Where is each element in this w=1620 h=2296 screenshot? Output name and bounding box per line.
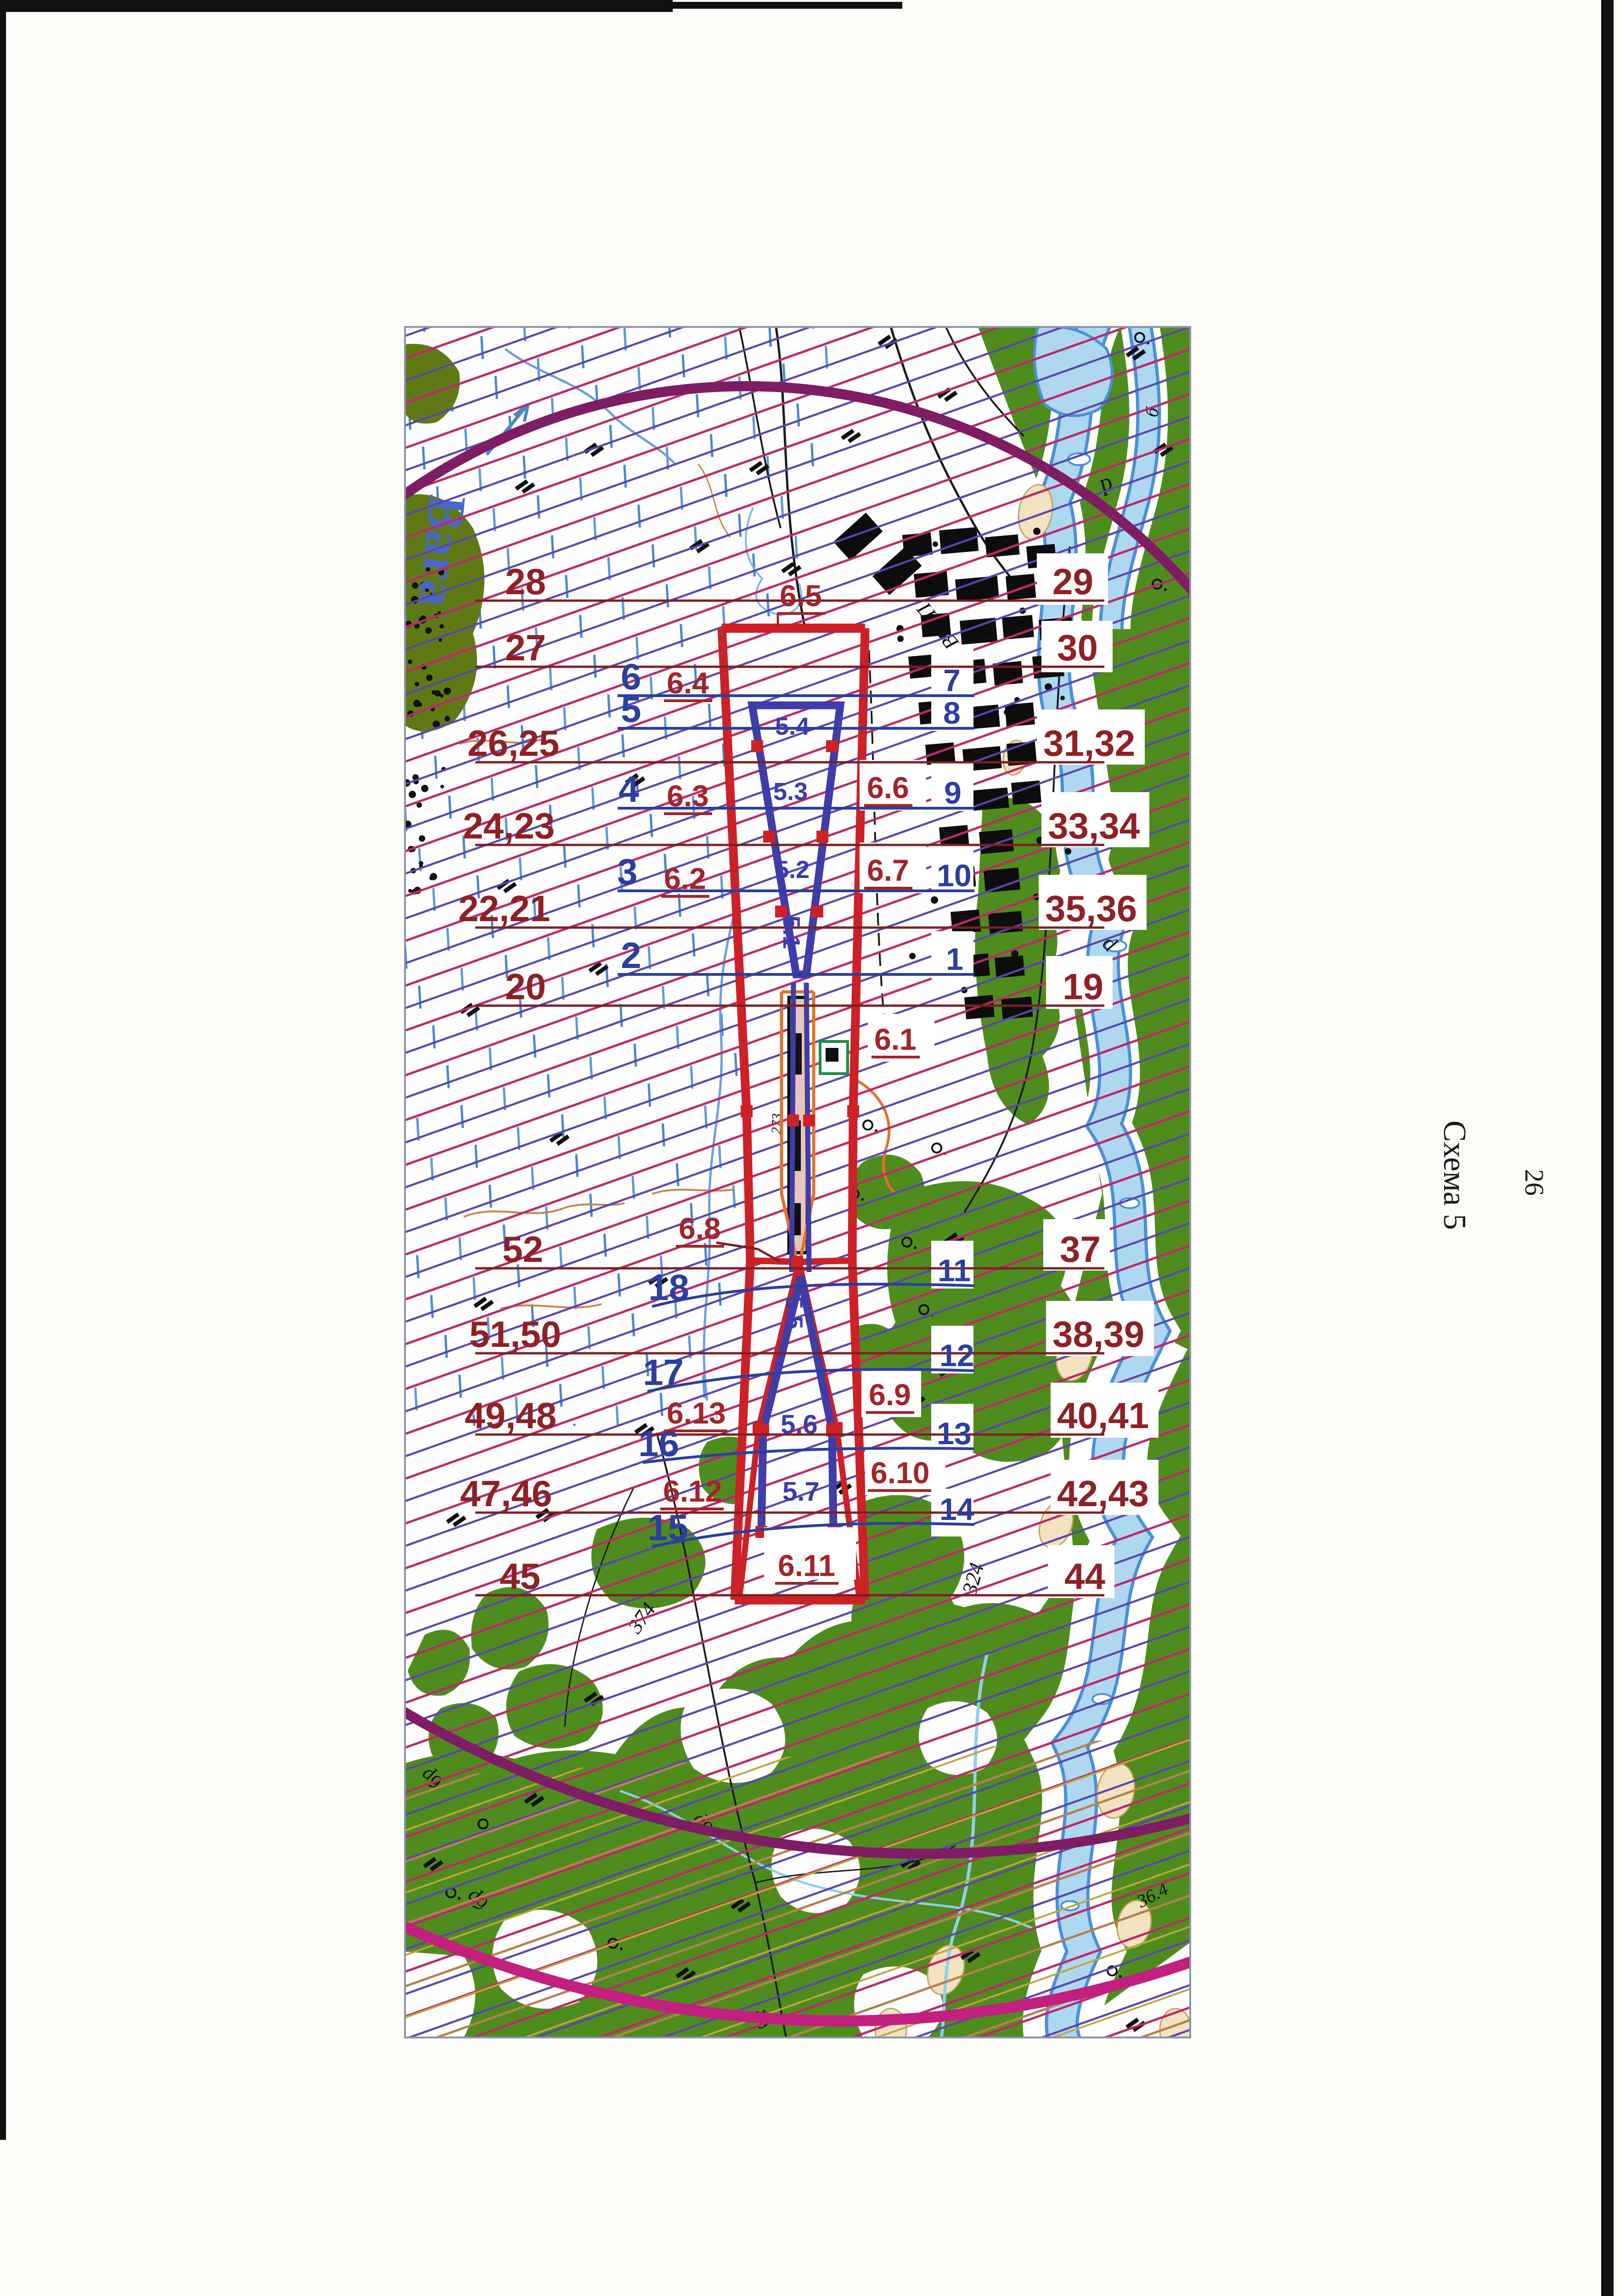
svg-text:37: 37: [1060, 1229, 1101, 1270]
svg-text:33,34: 33,34: [1048, 805, 1140, 846]
svg-text:5.1: 5.1: [778, 916, 804, 949]
svg-text:14: 14: [939, 1492, 974, 1527]
svg-text:47,46: 47,46: [460, 1473, 552, 1514]
svg-text:5.6: 5.6: [781, 1410, 818, 1440]
svg-text:6.13: 6.13: [667, 1396, 726, 1430]
svg-text:7: 7: [943, 663, 961, 698]
svg-text:5.3: 5.3: [773, 778, 808, 805]
svg-text:5: 5: [621, 689, 641, 730]
svg-text:5.5: 5.5: [781, 1296, 807, 1329]
svg-text:12: 12: [939, 1338, 974, 1373]
svg-text:38,39: 38,39: [1052, 1314, 1144, 1355]
svg-text:29: 29: [1052, 561, 1093, 602]
svg-text:31,32: 31,32: [1043, 723, 1135, 764]
svg-text:5.2: 5.2: [775, 856, 810, 884]
svg-text:49,48: 49,48: [465, 1395, 557, 1436]
svg-text:11: 11: [938, 1253, 971, 1288]
svg-text:2: 2: [621, 935, 641, 976]
svg-text:6.1: 6.1: [874, 1022, 917, 1056]
svg-text:3: 3: [617, 851, 638, 892]
svg-text:22,21: 22,21: [458, 888, 550, 929]
svg-text:6.4: 6.4: [667, 666, 709, 700]
svg-text:44: 44: [1064, 1556, 1105, 1597]
svg-text:42,43: 42,43: [1057, 1473, 1149, 1514]
svg-text:1: 1: [946, 942, 963, 977]
svg-text:9: 9: [944, 776, 962, 810]
svg-text:5.7: 5.7: [782, 1477, 820, 1507]
svg-text:6.9: 6.9: [869, 1378, 911, 1412]
svg-text:28: 28: [505, 561, 546, 602]
svg-text:35,36: 35,36: [1045, 888, 1137, 929]
svg-text:20: 20: [505, 966, 546, 1007]
svg-text:6.11: 6.11: [778, 1548, 835, 1582]
svg-text:26,25: 26,25: [467, 723, 559, 764]
svg-text:6.7: 6.7: [867, 853, 909, 887]
svg-text:45: 45: [500, 1556, 540, 1597]
svg-text:51,50: 51,50: [469, 1314, 561, 1355]
svg-text:27: 27: [505, 627, 546, 668]
svg-text:26: 26: [1519, 1169, 1549, 1196]
svg-text:6.8: 6.8: [679, 1211, 721, 1245]
svg-text:24,23: 24,23: [463, 805, 555, 846]
svg-text:40,41: 40,41: [1057, 1395, 1149, 1436]
svg-text:4: 4: [619, 769, 639, 810]
svg-text:15: 15: [647, 1507, 688, 1548]
svg-text:6.2: 6.2: [664, 861, 706, 895]
svg-text:Схема 5: Схема 5: [1437, 1120, 1472, 1230]
svg-text:30: 30: [1057, 627, 1098, 668]
svg-text:8: 8: [943, 696, 961, 731]
svg-text:6.3: 6.3: [667, 779, 709, 813]
svg-text:6.12: 6.12: [663, 1474, 722, 1508]
svg-text:17: 17: [643, 1352, 684, 1393]
svg-text:6.5: 6.5: [780, 579, 822, 613]
svg-text:10: 10: [937, 858, 972, 893]
svg-text:6.6: 6.6: [867, 771, 909, 805]
svg-text:18: 18: [648, 1267, 689, 1308]
svg-text:19: 19: [1063, 966, 1103, 1007]
svg-text:6.10: 6.10: [871, 1456, 929, 1490]
svg-text:52: 52: [502, 1229, 543, 1270]
svg-text:13: 13: [937, 1416, 972, 1451]
svg-text:5.4: 5.4: [775, 713, 810, 740]
